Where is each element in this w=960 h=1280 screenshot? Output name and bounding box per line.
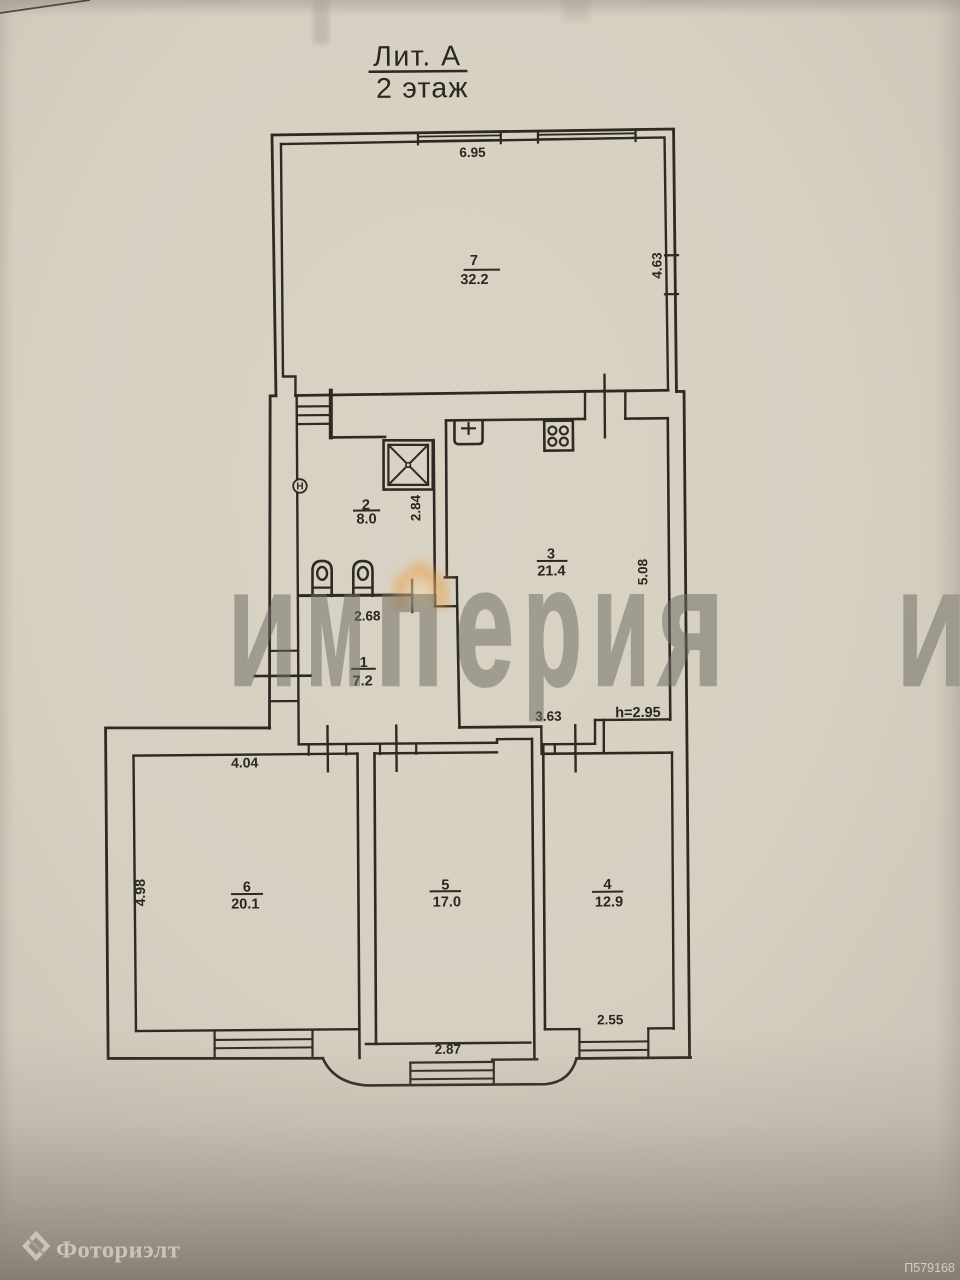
svg-text:я: я [657,532,724,722]
svg-text:8.0: 8.0 [356,511,376,527]
svg-text:7: 7 [470,253,478,269]
svg-text:5: 5 [441,877,449,893]
svg-text:е: е [455,532,514,722]
svg-text:17.0: 17.0 [433,894,461,910]
svg-text:И: И [229,567,296,713]
svg-text:32.2: 32.2 [460,272,488,288]
svg-text:Н: Н [296,481,303,492]
svg-text:4.04: 4.04 [231,754,259,770]
svg-text:р: р [523,532,582,722]
svg-text:П579168: П579168 [904,1261,955,1275]
svg-text:и: и [592,532,650,722]
svg-text:4.98: 4.98 [132,879,148,907]
svg-text:20.1: 20.1 [231,896,259,912]
svg-text:п: п [375,532,444,722]
svg-text:м: м [306,532,365,722]
svg-text:6: 6 [243,880,251,896]
svg-text:2.55: 2.55 [597,1012,624,1027]
svg-text:Фоториэлт: Фоториэлт [56,1237,180,1264]
svg-text:Лит. А: Лит. А [373,40,462,73]
svg-text:2 этаж: 2 этаж [376,72,469,105]
svg-text:6.95: 6.95 [459,145,486,160]
svg-text:2.84: 2.84 [408,494,423,521]
svg-text:4.63: 4.63 [649,252,664,279]
svg-text:4: 4 [603,877,611,893]
svg-text:12.9: 12.9 [595,894,623,910]
